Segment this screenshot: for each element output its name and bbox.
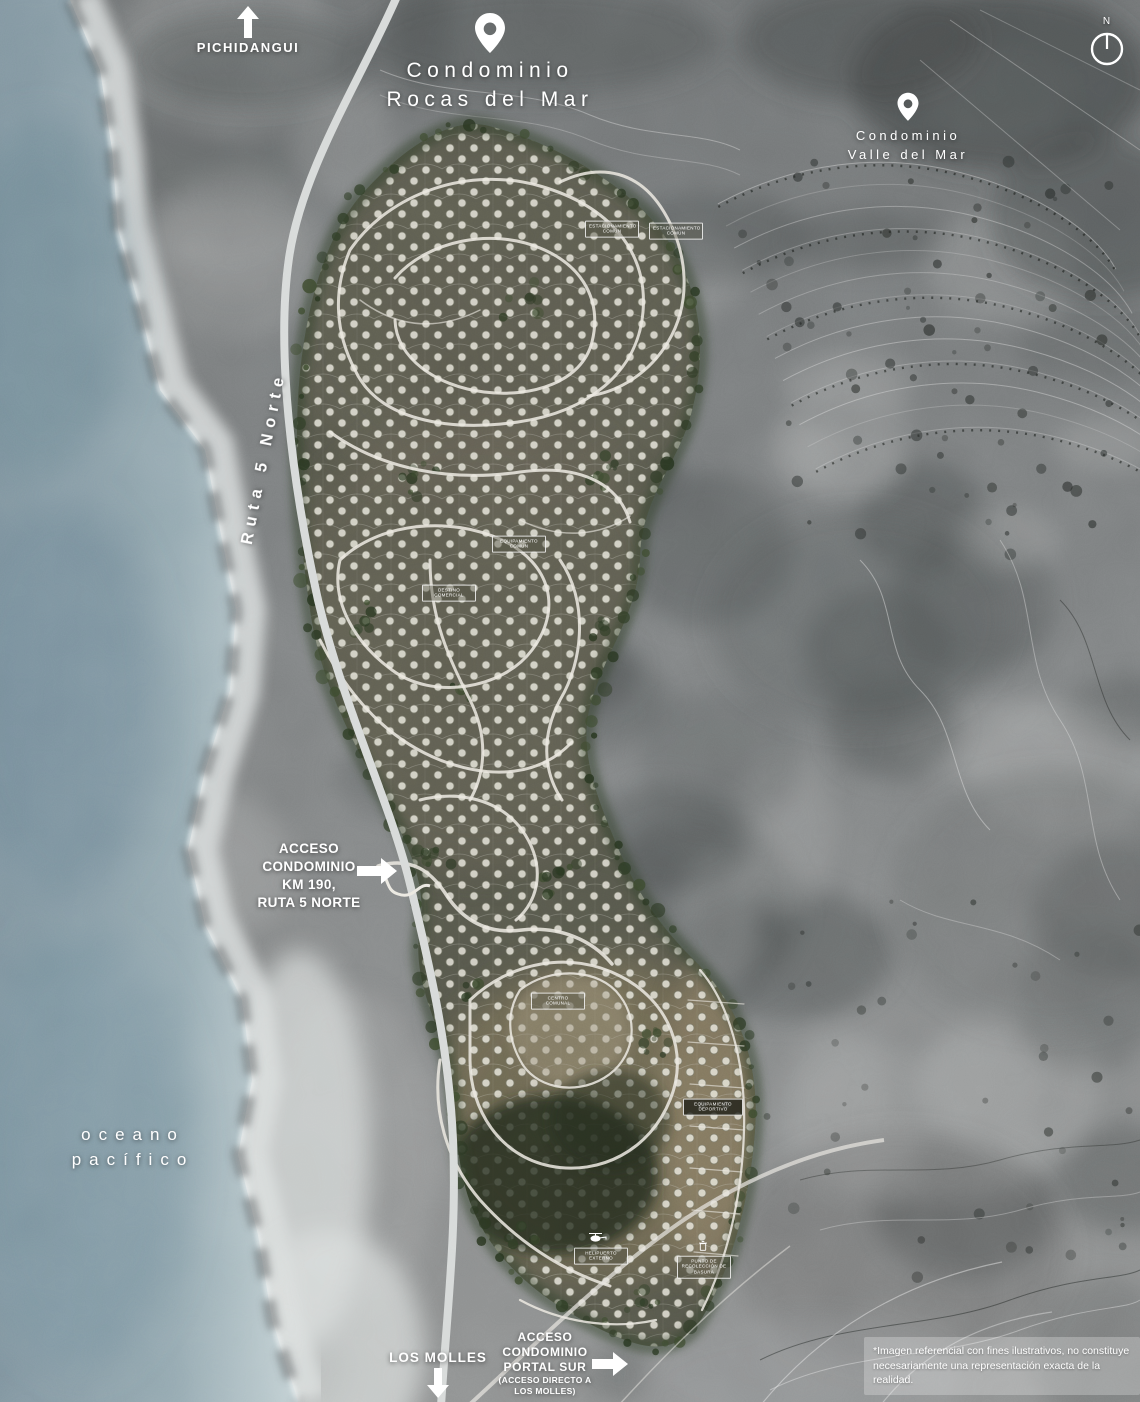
trash-bin-icon xyxy=(699,1241,708,1252)
poi-equipamiento-comun: EQUIPAMIENTO COMÚN xyxy=(492,536,546,553)
arrow-right-icon-south xyxy=(592,1352,628,1376)
ocean-label: oceano pacífico xyxy=(72,1122,195,1172)
poi-equipamiento-deportivo: EQUIPAMIENTO DEPORTIVO xyxy=(683,1099,743,1116)
condominio-valle-label: Condominio Valle del Mar xyxy=(848,126,968,164)
poi-centro-comunal: CENTRO COMUNAL xyxy=(531,993,585,1010)
portal-sur-line1: ACCESO xyxy=(499,1330,592,1345)
los-molles-label: LOS MOLLES xyxy=(389,1350,487,1365)
ocean-label-line2: pacífico xyxy=(72,1147,195,1172)
condominio-rocas-line2: Rocas del Mar xyxy=(387,85,594,114)
disclaimer-note: *Imagen referencial con fines ilustrativ… xyxy=(864,1337,1140,1395)
ocean-label-line1: oceano xyxy=(72,1122,195,1147)
map-pin-icon-small xyxy=(896,92,920,122)
access-km190-line1: ACCESO xyxy=(257,840,360,858)
portal-sur-line2: CONDOMINIO xyxy=(499,1345,592,1360)
poi-estacionamiento-comun-2: ESTACIONAMIENTO COMÚN xyxy=(649,223,703,240)
access-km190-line3: KM 190, xyxy=(257,876,360,894)
map-canvas xyxy=(0,0,1140,1402)
arrow-down-icon xyxy=(427,1368,449,1398)
condominio-valle-line1: Condominio xyxy=(848,126,968,145)
masterplan-map: PICHIDANGUI Condominio Rocas del Mar Con… xyxy=(0,0,1140,1402)
portal-sur-line5: LOS MOLLES) xyxy=(499,1386,592,1397)
access-portal-sur-label: ACCESO CONDOMINIO PORTAL SUR (ACCESO DIR… xyxy=(499,1330,592,1396)
pichidangui-label: PICHIDANGUI xyxy=(197,40,299,55)
arrow-right-icon xyxy=(357,858,397,884)
access-km190-line2: CONDOMINIO xyxy=(257,858,360,876)
compass-icon xyxy=(1085,28,1129,68)
poi-estacionamiento-comun-1: ESTACIONAMIENTO COMÚN xyxy=(585,221,639,238)
condominio-rocas-line1: Condominio xyxy=(387,56,594,85)
condominio-rocas-label: Condominio Rocas del Mar xyxy=(387,56,594,114)
access-km190-line4: RUTA 5 NORTE xyxy=(257,894,360,912)
access-km190-label: ACCESO CONDOMINIO KM 190, RUTA 5 NORTE xyxy=(257,840,360,912)
film-grain xyxy=(0,0,1140,1402)
poi-destino-comercial: DESTINO COMERCIAL xyxy=(422,585,476,602)
compass-north-label: N xyxy=(1085,16,1129,27)
poi-helipuerto: HELIPUERTO EXTERNO xyxy=(574,1248,628,1265)
compass: N xyxy=(1085,16,1129,68)
arrow-up-icon xyxy=(237,6,259,38)
portal-sur-line4: (ACCESO DIRECTO A xyxy=(499,1375,592,1386)
map-pin-icon xyxy=(473,12,507,54)
condominio-valle-line2: Valle del Mar xyxy=(848,145,968,164)
helicopter-icon xyxy=(588,1232,608,1243)
portal-sur-line3: PORTAL SUR xyxy=(499,1360,592,1375)
poi-punto-basura: PUNTO DE RECOLECCIÓN DE BASURA xyxy=(677,1256,731,1279)
